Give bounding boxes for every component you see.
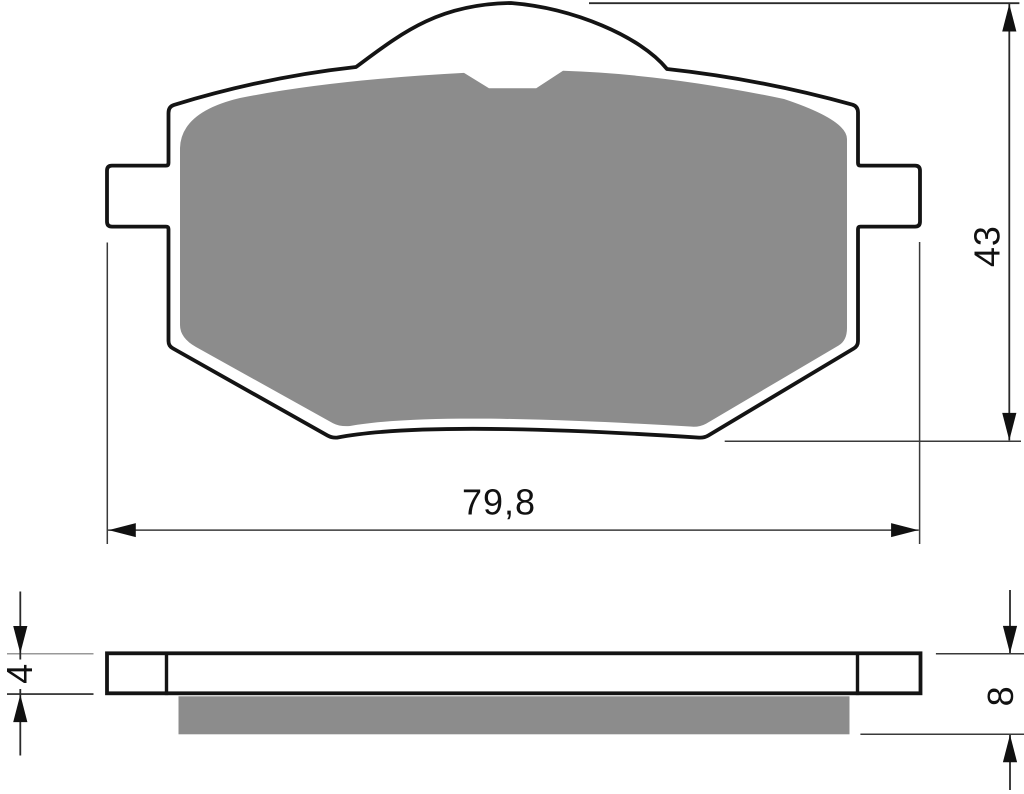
svg-text:79,8: 79,8 (462, 482, 536, 523)
svg-text:4: 4 (0, 664, 40, 684)
svg-text:8: 8 (980, 686, 1021, 706)
svg-text:43: 43 (966, 225, 1007, 267)
